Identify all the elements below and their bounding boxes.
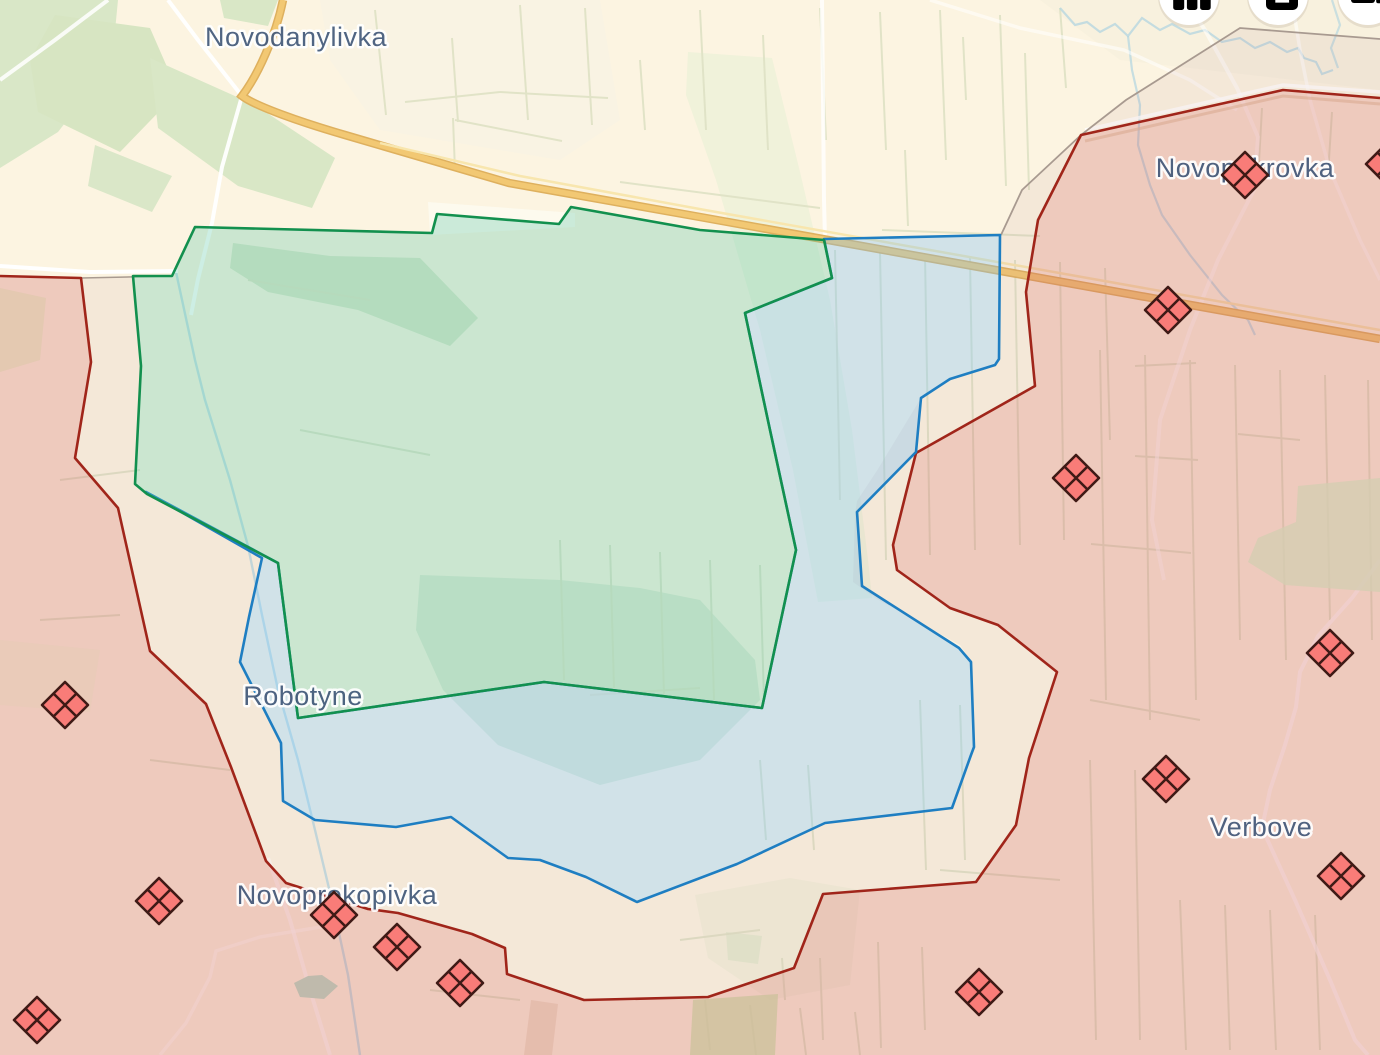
svg-text:Novodanylivka: Novodanylivka xyxy=(205,22,388,52)
svg-text:Verbove: Verbove xyxy=(1210,812,1313,842)
svg-text:Robotyne: Robotyne xyxy=(243,681,363,711)
